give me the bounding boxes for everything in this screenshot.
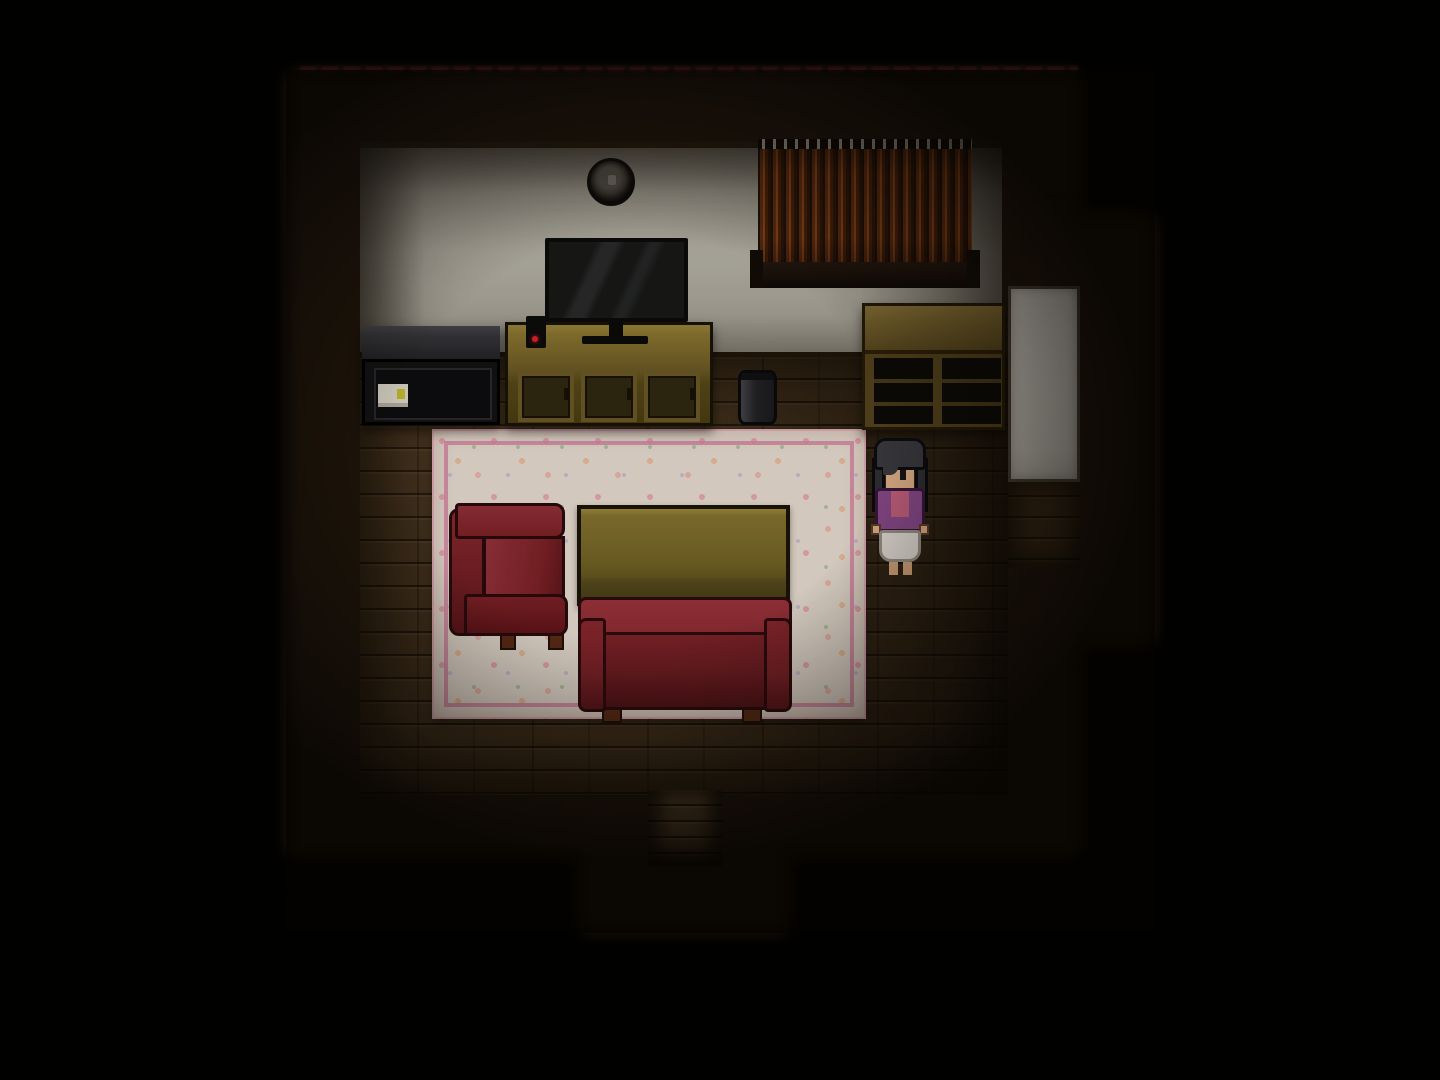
cabinet-label [378, 384, 408, 407]
character-eye [900, 470, 906, 480]
east-door-panel [1008, 286, 1080, 482]
armchair-seat [483, 536, 565, 598]
tv-base [582, 336, 648, 344]
coffee-table [577, 505, 790, 606]
character-shirt [891, 491, 909, 517]
armchair-foot [500, 634, 516, 650]
sofa-arm-left [578, 618, 606, 712]
south-exit-floor [648, 790, 722, 866]
curtain-sill [750, 262, 980, 288]
tv-stand-door [581, 372, 637, 422]
sofa-arm-right [764, 618, 792, 712]
wall-clock-icon [587, 158, 635, 206]
sofa-seat [586, 632, 784, 710]
sofa-foot [742, 708, 762, 723]
tv-stand-door [518, 372, 574, 422]
curtain-rings [758, 139, 972, 149]
game-viewport[interactable] [0, 0, 1440, 1080]
black-cabinet-top [362, 326, 500, 362]
character-hair [874, 438, 926, 470]
player-character [870, 436, 930, 576]
character-leg [889, 562, 898, 575]
power-led-icon [532, 336, 538, 342]
wall-shelf-top [865, 306, 1002, 354]
tv-remote [526, 316, 546, 348]
armchair-arm-top [455, 503, 565, 539]
curtain-sill-post-right [967, 250, 980, 288]
armchair-foot [548, 634, 564, 650]
character-skirt [879, 530, 921, 562]
shelf-compartment-right [942, 358, 1001, 424]
trash-can [738, 370, 777, 425]
east-alcove-floor [1008, 476, 1080, 568]
room-shadow-top-trim [300, 66, 1078, 73]
character-leg [903, 562, 912, 575]
armchair-arm-bottom [464, 594, 568, 636]
tv [545, 238, 688, 322]
tv-stand-doors [518, 372, 700, 422]
curtain-sill-post-left [750, 250, 763, 288]
shelf-compartment-left [874, 358, 933, 424]
tv-stand-door [644, 372, 700, 422]
